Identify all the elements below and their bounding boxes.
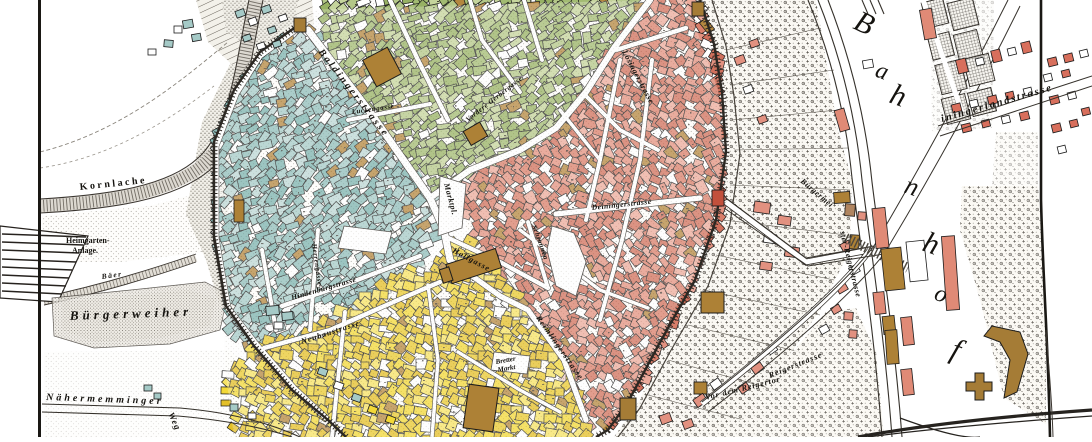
svg-text:Anlage.: Anlage. — [72, 246, 98, 255]
svg-text:Heimgarten-: Heimgarten- — [66, 236, 110, 245]
